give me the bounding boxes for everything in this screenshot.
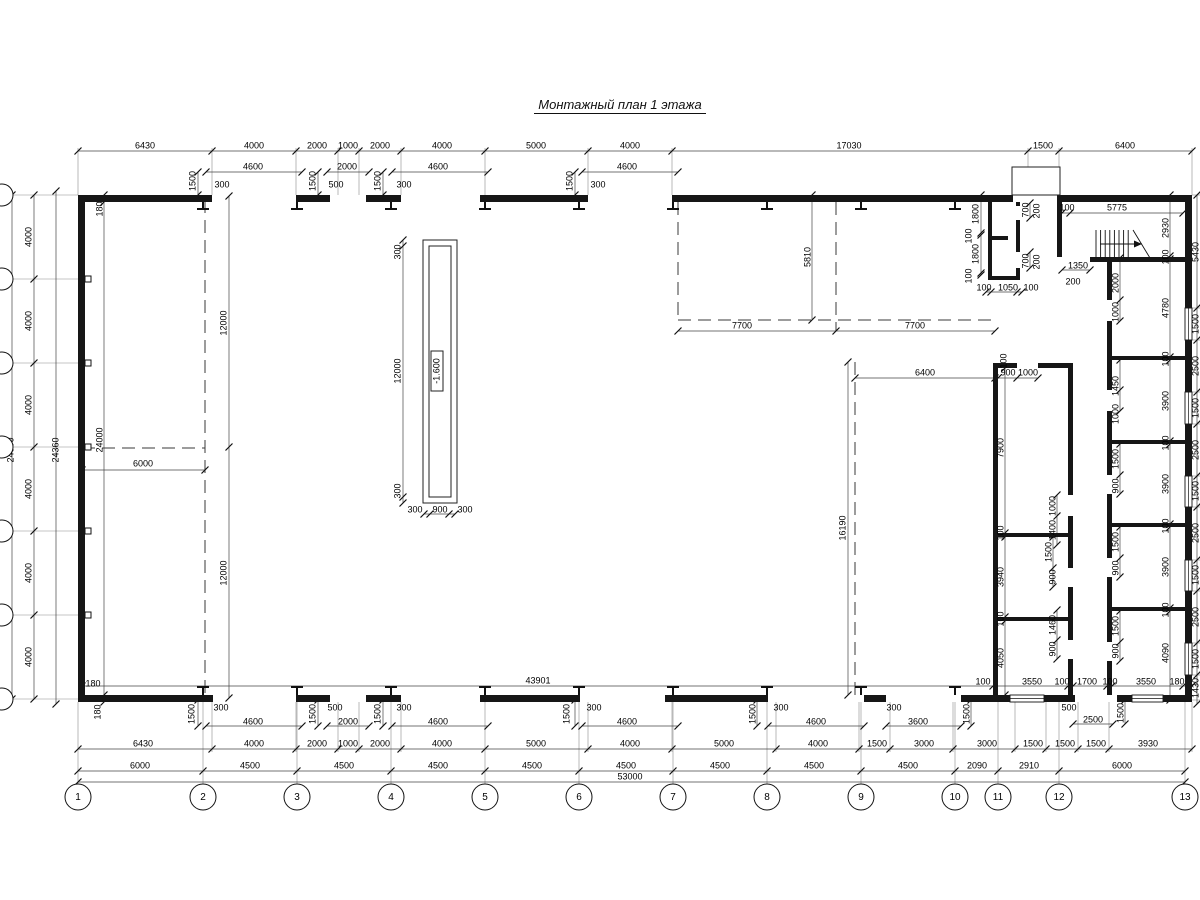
column-mark bbox=[390, 202, 392, 209]
wall-segment bbox=[1068, 363, 1073, 495]
wall-segment bbox=[1068, 587, 1073, 640]
dim-label: 6400 bbox=[915, 367, 935, 377]
dim-label: 1700 bbox=[1077, 676, 1097, 686]
dim-label: 4000 bbox=[620, 140, 640, 150]
column-mark bbox=[484, 202, 486, 209]
column-mark bbox=[479, 686, 491, 688]
dim-label: 3000 bbox=[977, 738, 997, 748]
pit-depth-label: -1.600 bbox=[431, 358, 441, 384]
dim-label: 6000 bbox=[1112, 760, 1132, 770]
dim-label: 4500 bbox=[898, 760, 918, 770]
dim-label: 100 bbox=[1160, 435, 1170, 450]
dim-label: 4000 bbox=[23, 479, 33, 499]
dim-label: 24360 bbox=[50, 437, 60, 462]
dim-label: 1500 bbox=[564, 171, 574, 191]
axis-bubble-label: 1 bbox=[75, 792, 81, 803]
dim-label: 3930 bbox=[1138, 738, 1158, 748]
dim-label: 5430 bbox=[1190, 242, 1200, 262]
dim-label: 6430 bbox=[135, 140, 155, 150]
dim-label: 100 bbox=[975, 676, 990, 686]
wall-segment bbox=[988, 276, 1020, 280]
dim-label: 1500 bbox=[187, 171, 197, 191]
dim-label: 4090 bbox=[1160, 643, 1170, 663]
dim-label: 300 bbox=[213, 702, 228, 712]
dim-label: 100 bbox=[963, 268, 973, 283]
dim-label: 200 bbox=[1065, 276, 1080, 286]
column-mark bbox=[578, 688, 580, 695]
dim-label: 1500 bbox=[372, 171, 382, 191]
dim-label: 2090 bbox=[967, 760, 987, 770]
dim-label: 900 bbox=[1110, 478, 1120, 493]
column-mark bbox=[578, 202, 580, 209]
column-mark bbox=[197, 208, 209, 210]
axis-bubble-label: 11 bbox=[993, 792, 1004, 803]
axis-bubble-label: 3 bbox=[294, 792, 300, 803]
wall-segment bbox=[1112, 523, 1185, 527]
dim-label: 24000 bbox=[94, 427, 104, 452]
dim-label: 100 bbox=[1160, 602, 1170, 617]
dim-label: 1500 bbox=[1110, 449, 1120, 469]
axis-bubble bbox=[0, 184, 13, 206]
dim-label: 4000 bbox=[620, 738, 640, 748]
dim-label: 1500 bbox=[1190, 481, 1200, 501]
dim-label: 3900 bbox=[1160, 474, 1170, 494]
dim-label: 2000 bbox=[307, 140, 327, 150]
dim-label: 300 bbox=[214, 179, 229, 189]
dim-label: 2000 bbox=[337, 161, 357, 171]
dim-label: 4500 bbox=[616, 760, 636, 770]
column-mark bbox=[479, 208, 491, 210]
dim-label: 1500 bbox=[1190, 565, 1200, 585]
column-mark bbox=[573, 208, 585, 210]
column-mark bbox=[573, 686, 585, 688]
column-mark bbox=[860, 202, 862, 209]
dim-label: 900 bbox=[432, 504, 447, 514]
column-mark bbox=[766, 202, 768, 209]
dim-label: 4780 bbox=[1160, 298, 1170, 318]
column-mark bbox=[385, 686, 397, 688]
dim-label: 4000 bbox=[23, 563, 33, 583]
dim-label: 100 bbox=[976, 282, 991, 292]
dim-label: 1500 bbox=[1086, 738, 1106, 748]
dim-label: 900 bbox=[1110, 560, 1120, 575]
dim-label: 4600 bbox=[806, 716, 826, 726]
dim-label: 1500 bbox=[372, 704, 382, 724]
dim-label: 500 bbox=[327, 702, 342, 712]
dim-label: 53000 bbox=[617, 771, 642, 781]
dim-label: 300 bbox=[392, 483, 402, 498]
dim-label: 4500 bbox=[334, 760, 354, 770]
dim-label: 100 bbox=[1059, 202, 1074, 212]
dim-label: 100 bbox=[1160, 249, 1170, 264]
dim-label: 100 bbox=[963, 228, 973, 243]
wall-segment bbox=[1016, 220, 1020, 252]
dim-label: 4500 bbox=[710, 760, 730, 770]
column-mark bbox=[296, 688, 298, 695]
dim-label: 6000 bbox=[130, 760, 150, 770]
axis-bubble-label: 4 bbox=[388, 792, 394, 803]
dim-label: 300 bbox=[457, 504, 472, 514]
dim-label: 6430 bbox=[133, 738, 153, 748]
column-mark bbox=[855, 208, 867, 210]
dim-label: 1050 bbox=[998, 282, 1018, 292]
column-mark bbox=[291, 208, 303, 210]
dim-label: 3000 bbox=[914, 738, 934, 748]
dim-label: 12000 bbox=[392, 358, 402, 383]
dim-label: 1430 bbox=[1190, 678, 1200, 698]
dim-label: 4500 bbox=[240, 760, 260, 770]
dim-label: 3600 bbox=[908, 716, 928, 726]
wall-segment bbox=[1112, 607, 1185, 611]
dim-label: 900 bbox=[1000, 367, 1015, 377]
dim-label: 1000 bbox=[1047, 496, 1057, 516]
dim-label: 100 bbox=[1160, 351, 1170, 366]
dim-label: 4600 bbox=[428, 161, 448, 171]
wall-segment bbox=[480, 195, 588, 202]
axis-bubble-label: 6 bbox=[576, 792, 582, 803]
dim-label: 300 bbox=[407, 504, 422, 514]
dim-label: 1800 bbox=[970, 244, 980, 264]
dim-label: 7900 bbox=[995, 438, 1005, 458]
column-mark bbox=[672, 688, 674, 695]
dim-label: 5810 bbox=[802, 247, 812, 267]
column-mark bbox=[85, 444, 91, 450]
dim-label: 1450 bbox=[1110, 376, 1120, 396]
dim-label: 1500 bbox=[561, 704, 571, 724]
dim-label: 4600 bbox=[428, 716, 448, 726]
dim-label: 5000 bbox=[526, 738, 546, 748]
wall-segment bbox=[1112, 356, 1185, 360]
dim-label: 4000 bbox=[432, 738, 452, 748]
dim-label: 17030 bbox=[836, 140, 861, 150]
dim-label: 1500 bbox=[1190, 649, 1200, 669]
column-mark bbox=[85, 528, 91, 534]
column-mark bbox=[202, 688, 204, 695]
dim-label: 900 bbox=[1047, 569, 1057, 584]
dim-label: 5775 bbox=[1107, 202, 1127, 212]
dim-label: 4000 bbox=[244, 140, 264, 150]
column-mark bbox=[954, 202, 956, 209]
column-mark bbox=[85, 276, 91, 282]
dim-label: 5000 bbox=[714, 738, 734, 748]
axis-bubble-label: 2 bbox=[200, 792, 206, 803]
axis-bubble bbox=[0, 520, 13, 542]
dim-label: 100 bbox=[1102, 676, 1117, 686]
dim-label: 100 bbox=[998, 353, 1008, 368]
dim-label: 3900 bbox=[1160, 391, 1170, 411]
dim-label: 300 bbox=[396, 702, 411, 712]
wall-segment bbox=[296, 195, 330, 202]
dim-label: 700 bbox=[1020, 253, 1030, 268]
axis-bubble bbox=[0, 268, 13, 290]
dim-label: 200 bbox=[1031, 203, 1041, 218]
dim-label: 1500 bbox=[961, 704, 971, 724]
wall-segment bbox=[78, 195, 212, 202]
column-mark bbox=[385, 208, 397, 210]
dim-label: 1000 bbox=[1110, 302, 1120, 322]
dim-label: 2000 bbox=[338, 716, 358, 726]
dim-label: 5000 bbox=[526, 140, 546, 150]
axis-bubble-label: 9 bbox=[858, 792, 864, 803]
column-mark bbox=[296, 202, 298, 209]
dim-label: 1500 bbox=[1055, 738, 1075, 748]
dim-label: 2500 bbox=[1190, 440, 1200, 460]
column-mark bbox=[860, 688, 862, 695]
axis-bubble bbox=[0, 604, 13, 626]
wall-segment bbox=[296, 695, 330, 702]
wall-segment bbox=[1068, 516, 1073, 568]
dim-label: 4600 bbox=[243, 716, 263, 726]
wall-segment bbox=[78, 695, 213, 702]
column-mark bbox=[291, 686, 303, 688]
column-mark bbox=[766, 688, 768, 695]
wall-segment bbox=[1038, 363, 1070, 368]
dim-label: 1500 bbox=[867, 738, 887, 748]
wall-segment bbox=[864, 695, 886, 702]
dim-label: 1800 bbox=[970, 204, 980, 224]
dim-label: 180 bbox=[92, 704, 102, 719]
dim-label: 1500 bbox=[1190, 398, 1200, 418]
dim-label: 180 bbox=[94, 201, 104, 216]
column-mark bbox=[667, 686, 679, 688]
axis-bubble bbox=[0, 352, 13, 374]
column-mark bbox=[667, 208, 679, 210]
dim-label: 180 bbox=[85, 678, 100, 688]
dim-label: 300 bbox=[586, 702, 601, 712]
dim-label: 16190 bbox=[837, 515, 847, 540]
dim-label: 300 bbox=[392, 244, 402, 259]
wall-segment bbox=[1044, 695, 1075, 702]
dim-label: 500 bbox=[328, 179, 343, 189]
axis-bubble-label: 7 bbox=[670, 792, 676, 803]
column-mark bbox=[949, 686, 961, 688]
dim-label: 6000 bbox=[133, 458, 153, 468]
drawing-sheet: Монтажный план 1 этажа 64304000200010002… bbox=[0, 0, 1200, 900]
dim-label: 1500 bbox=[1043, 542, 1053, 562]
dim-label: 100 bbox=[1160, 518, 1170, 533]
dim-label: 100 bbox=[1023, 282, 1038, 292]
dim-label: 4000 bbox=[23, 227, 33, 247]
dim-label: 4600 bbox=[617, 716, 637, 726]
dim-label: 2000 bbox=[370, 738, 390, 748]
stair-walk-arrow bbox=[1134, 241, 1142, 248]
dim-label: 100 bbox=[995, 525, 1005, 540]
wall-segment bbox=[366, 695, 401, 702]
dim-label: 4000 bbox=[23, 311, 33, 331]
axis-bubble-label: 5 bbox=[482, 792, 488, 803]
dim-label: 900 bbox=[1110, 643, 1120, 658]
axis-bubble-label: 12 bbox=[1053, 792, 1065, 803]
dim-label: 12000 bbox=[218, 310, 228, 335]
wall-segment bbox=[1117, 695, 1132, 702]
wall-segment bbox=[961, 695, 1010, 702]
column-mark bbox=[85, 360, 91, 366]
wall-segment bbox=[665, 695, 768, 702]
dim-label: 2500 bbox=[1190, 607, 1200, 627]
dim-label: 2000 bbox=[307, 738, 327, 748]
dim-label: 300 bbox=[773, 702, 788, 712]
dim-label: 4500 bbox=[428, 760, 448, 770]
dim-label: 100 bbox=[995, 611, 1005, 626]
dim-label: 180 bbox=[1169, 676, 1184, 686]
dim-label: 1500 bbox=[1110, 532, 1120, 552]
column-mark bbox=[202, 202, 204, 209]
dim-label: 2000 bbox=[370, 140, 390, 150]
dim-label: 7700 bbox=[905, 320, 925, 330]
dim-label: 2910 bbox=[1019, 760, 1039, 770]
dim-label: 2930 bbox=[1160, 218, 1170, 238]
dim-label: 3550 bbox=[1136, 676, 1156, 686]
dim-label: 300 bbox=[886, 702, 901, 712]
dim-label: 2500 bbox=[1190, 523, 1200, 543]
dim-label: 1000 bbox=[338, 140, 358, 150]
dim-label: 1500 bbox=[1190, 314, 1200, 334]
dim-label: 300 bbox=[396, 179, 411, 189]
dim-label: 4500 bbox=[522, 760, 542, 770]
axis-bubble-label: 13 bbox=[1179, 792, 1191, 803]
floor-plan-svg: 6430400020001000200040005000400017030150… bbox=[0, 0, 1200, 900]
dim-label: 1500 bbox=[1023, 738, 1043, 748]
axis-bubble-label: 10 bbox=[949, 792, 961, 803]
dim-label: 1500 bbox=[1033, 140, 1053, 150]
column-mark bbox=[855, 686, 867, 688]
dim-label: 1500 bbox=[1115, 703, 1125, 723]
dim-label: 3550 bbox=[1022, 676, 1042, 686]
dim-label: 1500 bbox=[186, 704, 196, 724]
axis-bubble bbox=[0, 688, 13, 710]
axis-bubble-label: 8 bbox=[764, 792, 770, 803]
dim-label: 6400 bbox=[1115, 140, 1135, 150]
dim-label: 4000 bbox=[432, 140, 452, 150]
dim-label: 4500 bbox=[804, 760, 824, 770]
column-mark bbox=[484, 688, 486, 695]
dim-label: 1500 bbox=[1110, 616, 1120, 636]
dim-label: 12000 bbox=[218, 560, 228, 585]
dim-label: 200 bbox=[1031, 254, 1041, 269]
dim-label: 4600 bbox=[243, 161, 263, 171]
column-mark bbox=[197, 686, 209, 688]
dim-label: 1500 bbox=[307, 171, 317, 191]
column-mark bbox=[390, 688, 392, 695]
dim-label: 3940 bbox=[995, 567, 1005, 587]
column-mark bbox=[761, 686, 773, 688]
column-mark bbox=[672, 202, 674, 209]
dim-label: 1000 bbox=[1110, 404, 1120, 424]
wall-segment bbox=[480, 695, 580, 702]
wall-segment bbox=[1059, 195, 1192, 202]
wall-segment bbox=[1112, 440, 1185, 444]
dim-label: 4050 bbox=[995, 648, 1005, 668]
dim-label: 4000 bbox=[244, 738, 264, 748]
dim-label: 2500 bbox=[1190, 356, 1200, 376]
dim-label: 4000 bbox=[23, 395, 33, 415]
dim-label: 1400 bbox=[1047, 520, 1057, 540]
dim-label: 2500 bbox=[1083, 714, 1103, 724]
dim-label: 4600 bbox=[617, 161, 637, 171]
dim-label: 7700 bbox=[732, 320, 752, 330]
dim-label: 1460 bbox=[1047, 615, 1057, 635]
wall-segment bbox=[1090, 257, 1187, 262]
wall-segment bbox=[672, 195, 1013, 202]
dim-label: 3900 bbox=[1160, 557, 1170, 577]
thin-outline bbox=[1012, 167, 1060, 195]
column-mark bbox=[85, 612, 91, 618]
dim-label: 300 bbox=[590, 179, 605, 189]
dim-label: 100 bbox=[1054, 676, 1069, 686]
dim-label: 1500 bbox=[747, 704, 757, 724]
dim-label: 1000 bbox=[338, 738, 358, 748]
wall-segment bbox=[366, 195, 401, 202]
dim-label: 4000 bbox=[808, 738, 828, 748]
column-mark bbox=[761, 208, 773, 210]
dim-label: 1500 bbox=[307, 704, 317, 724]
dim-label: 500 bbox=[1061, 702, 1076, 712]
dim-label: 700 bbox=[1020, 202, 1030, 217]
dim-label: 2000 bbox=[1110, 273, 1120, 293]
dim-label: 900 bbox=[1047, 641, 1057, 656]
dim-label: 1000 bbox=[1018, 367, 1038, 377]
dim-label: 43901 bbox=[525, 675, 550, 685]
dim-label: 4000 bbox=[23, 647, 33, 667]
dim-label: 1350 bbox=[1068, 260, 1088, 270]
wall-segment bbox=[78, 195, 85, 702]
column-mark bbox=[954, 688, 956, 695]
column-mark bbox=[949, 208, 961, 210]
wall-segment bbox=[988, 236, 1008, 240]
